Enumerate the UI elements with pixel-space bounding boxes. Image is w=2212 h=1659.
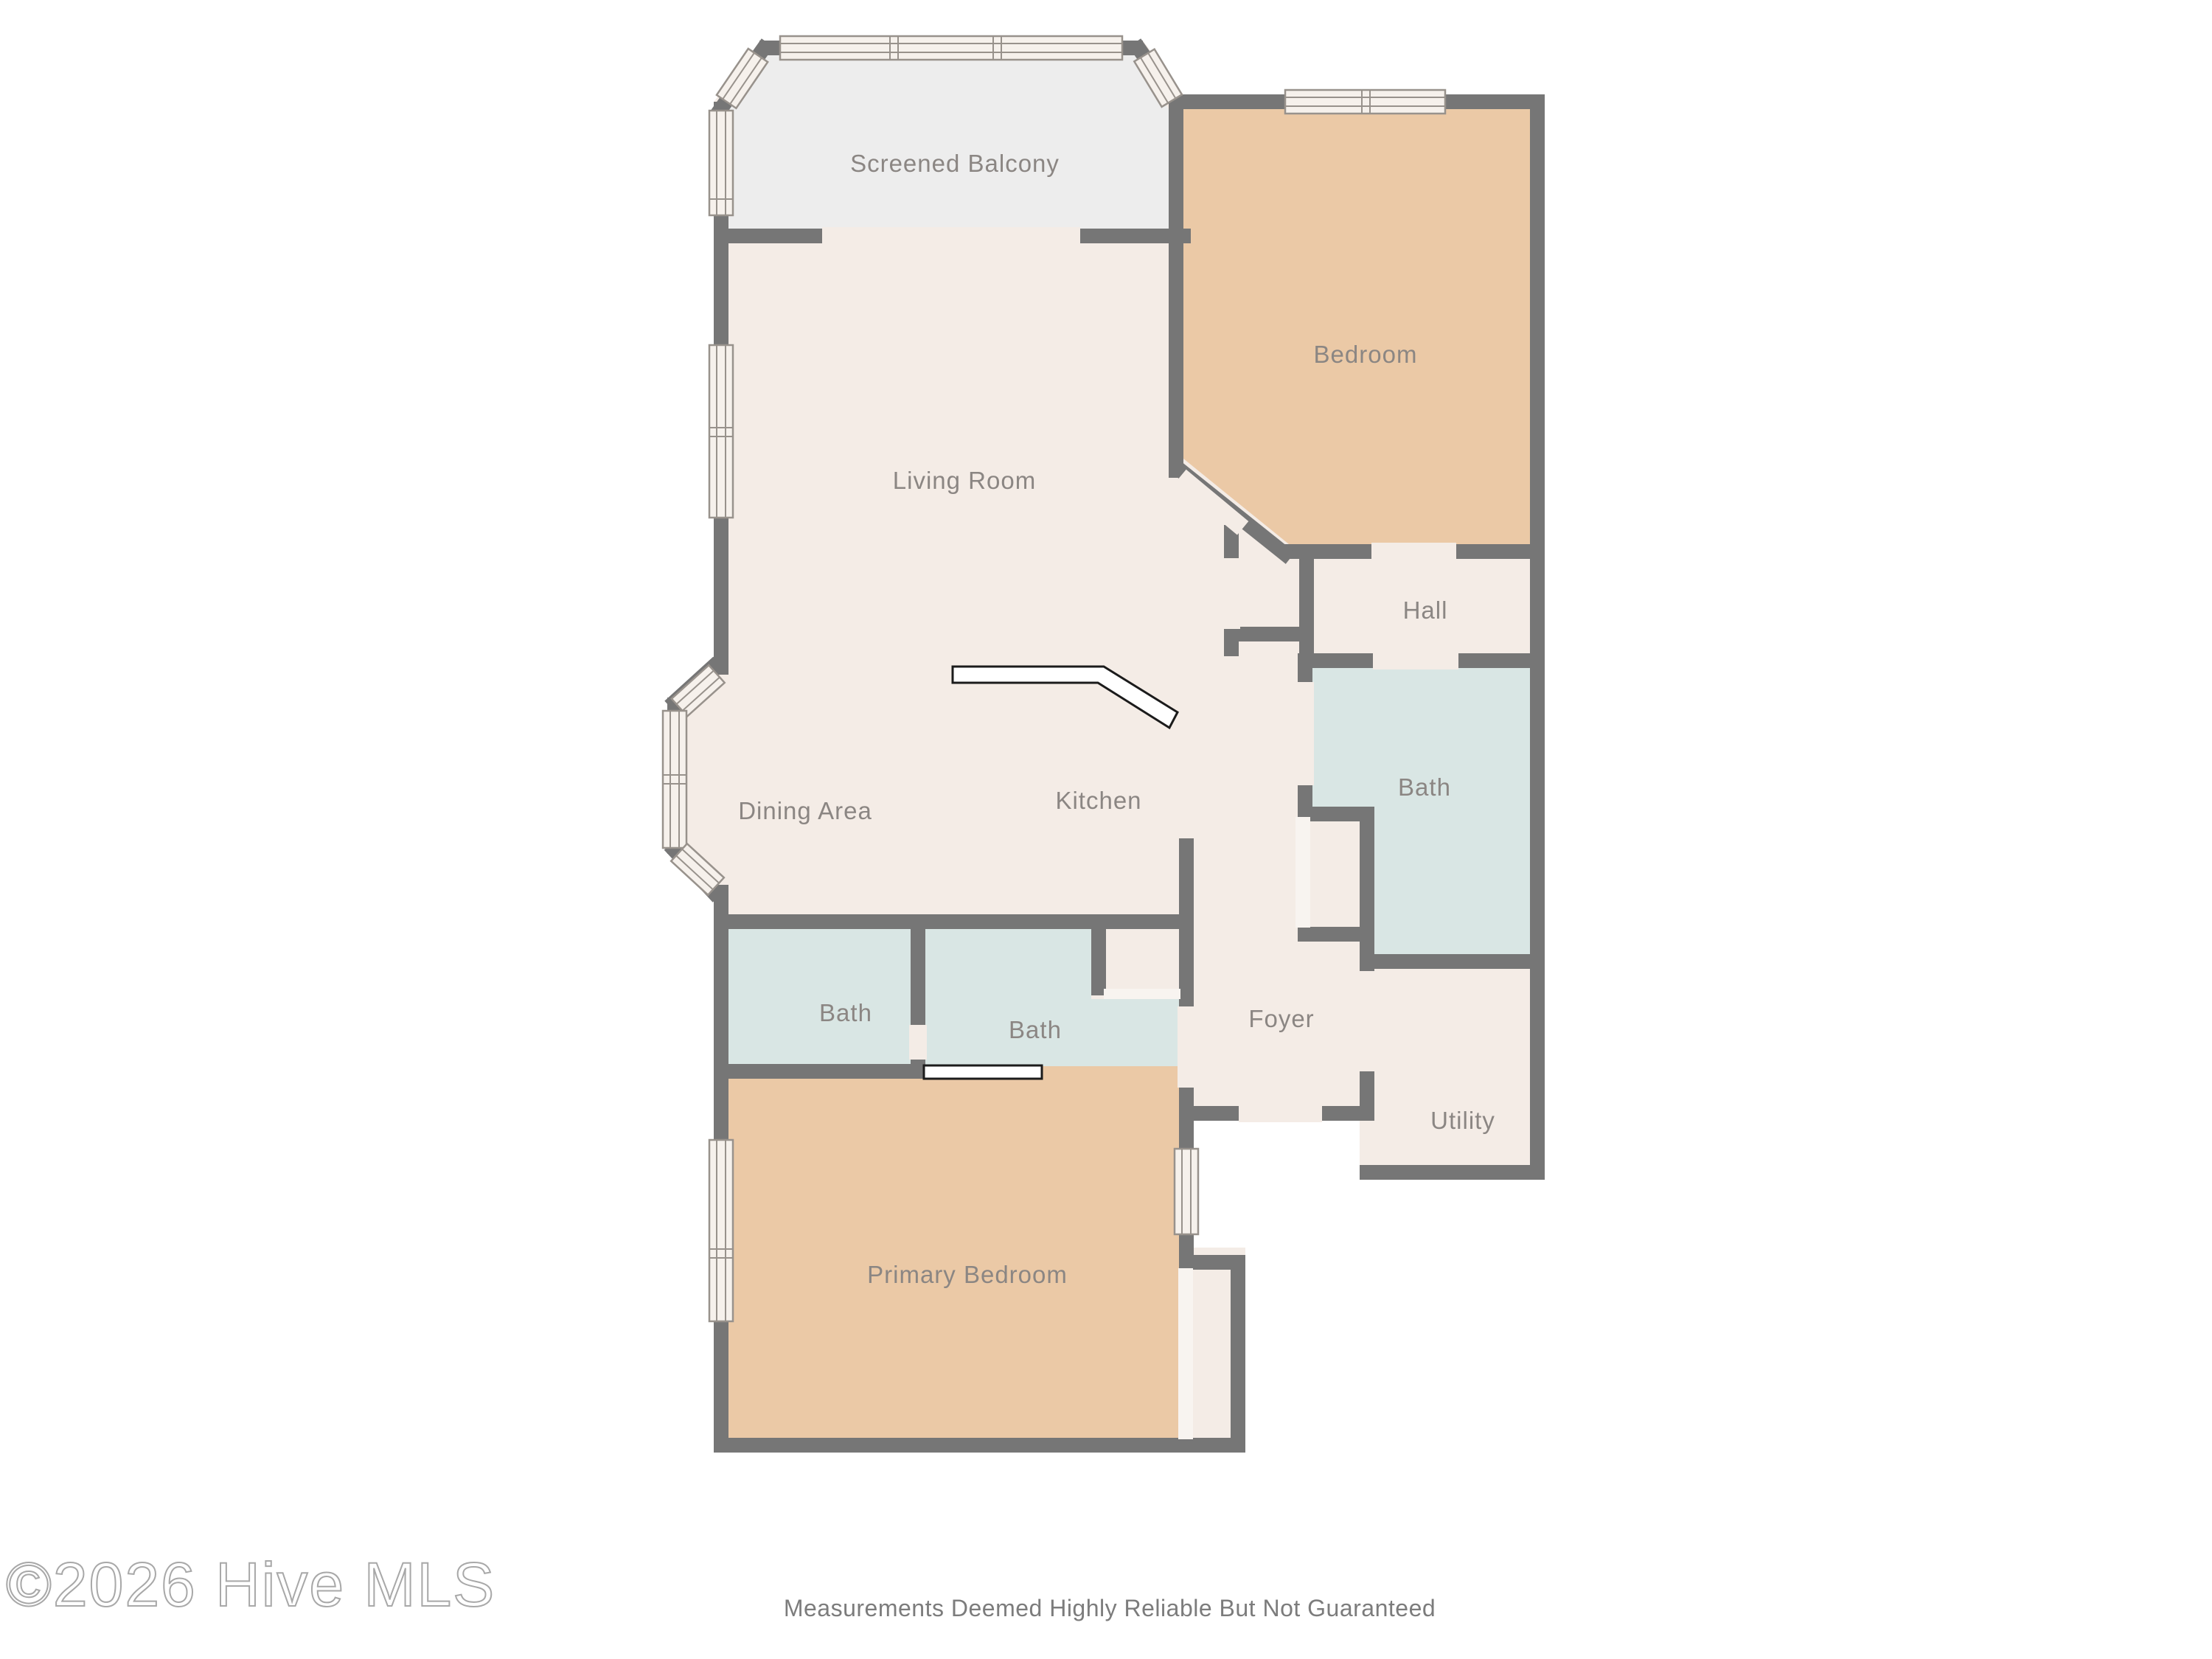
room-label-bath-right: Bath [1398,773,1451,801]
room-label-balcony: Screened Balcony [850,150,1060,177]
window-living-left [709,345,733,518]
opening-bath-door [1296,682,1314,785]
room-label-foyer: Foyer [1248,1005,1314,1032]
floorplan-canvas: Screened Balcony Bedroom Living Room Hal… [0,0,2212,1659]
opening-front-entry [1239,1105,1322,1122]
disclaimer-text: Measurements Deemed Highly Reliable But … [784,1595,1436,1621]
window-bay-left [663,711,686,848]
opening-balcony-door [822,227,1080,245]
room-label-living: Living Room [893,467,1036,494]
opening-hall-bath [1373,652,1458,669]
room-label-dining: Dining Area [738,797,872,824]
primary-bedroom-sliding-door [924,1065,1042,1079]
door-bathb-closet [1104,989,1180,999]
balcony-fill-group [728,55,1169,229]
room-label-kitchen: Kitchen [1055,787,1141,814]
opening-utility-door [1358,971,1376,1071]
opening-bath-divider-door [909,1025,927,1060]
window-balcony-top [780,36,1122,60]
door-bath-closet [1295,817,1310,928]
room-fill-bath-a [728,929,911,1064]
room-label-hall: Hall [1403,597,1448,624]
mls-watermark: ©2026 Hive MLS [6,1550,495,1619]
room-label-bedroom: Bedroom [1314,341,1418,368]
door-primary-closet [1178,1268,1193,1439]
opening-bedroom-hall [1371,543,1456,560]
window-primary-east [1175,1149,1198,1234]
room-label-utility: Utility [1430,1107,1495,1134]
floorplan-page: Screened Balcony Bedroom Living Room Hal… [0,0,2212,1659]
room-fill-balcony [728,55,1169,229]
window-bedroom-top [1285,90,1445,114]
room-label-bath-b: Bath [1009,1016,1062,1043]
room-fill-bedroom [1183,109,1530,544]
room-fill-primary-bedroom [728,1066,1180,1438]
opening-suite-entry [1178,1006,1195,1088]
window-primary-left [709,1140,733,1321]
opening-vestibule [1222,558,1240,629]
room-label-bath-a: Bath [819,999,872,1026]
window-balcony-left [709,111,733,215]
room-label-primary: Primary Bedroom [867,1261,1068,1288]
